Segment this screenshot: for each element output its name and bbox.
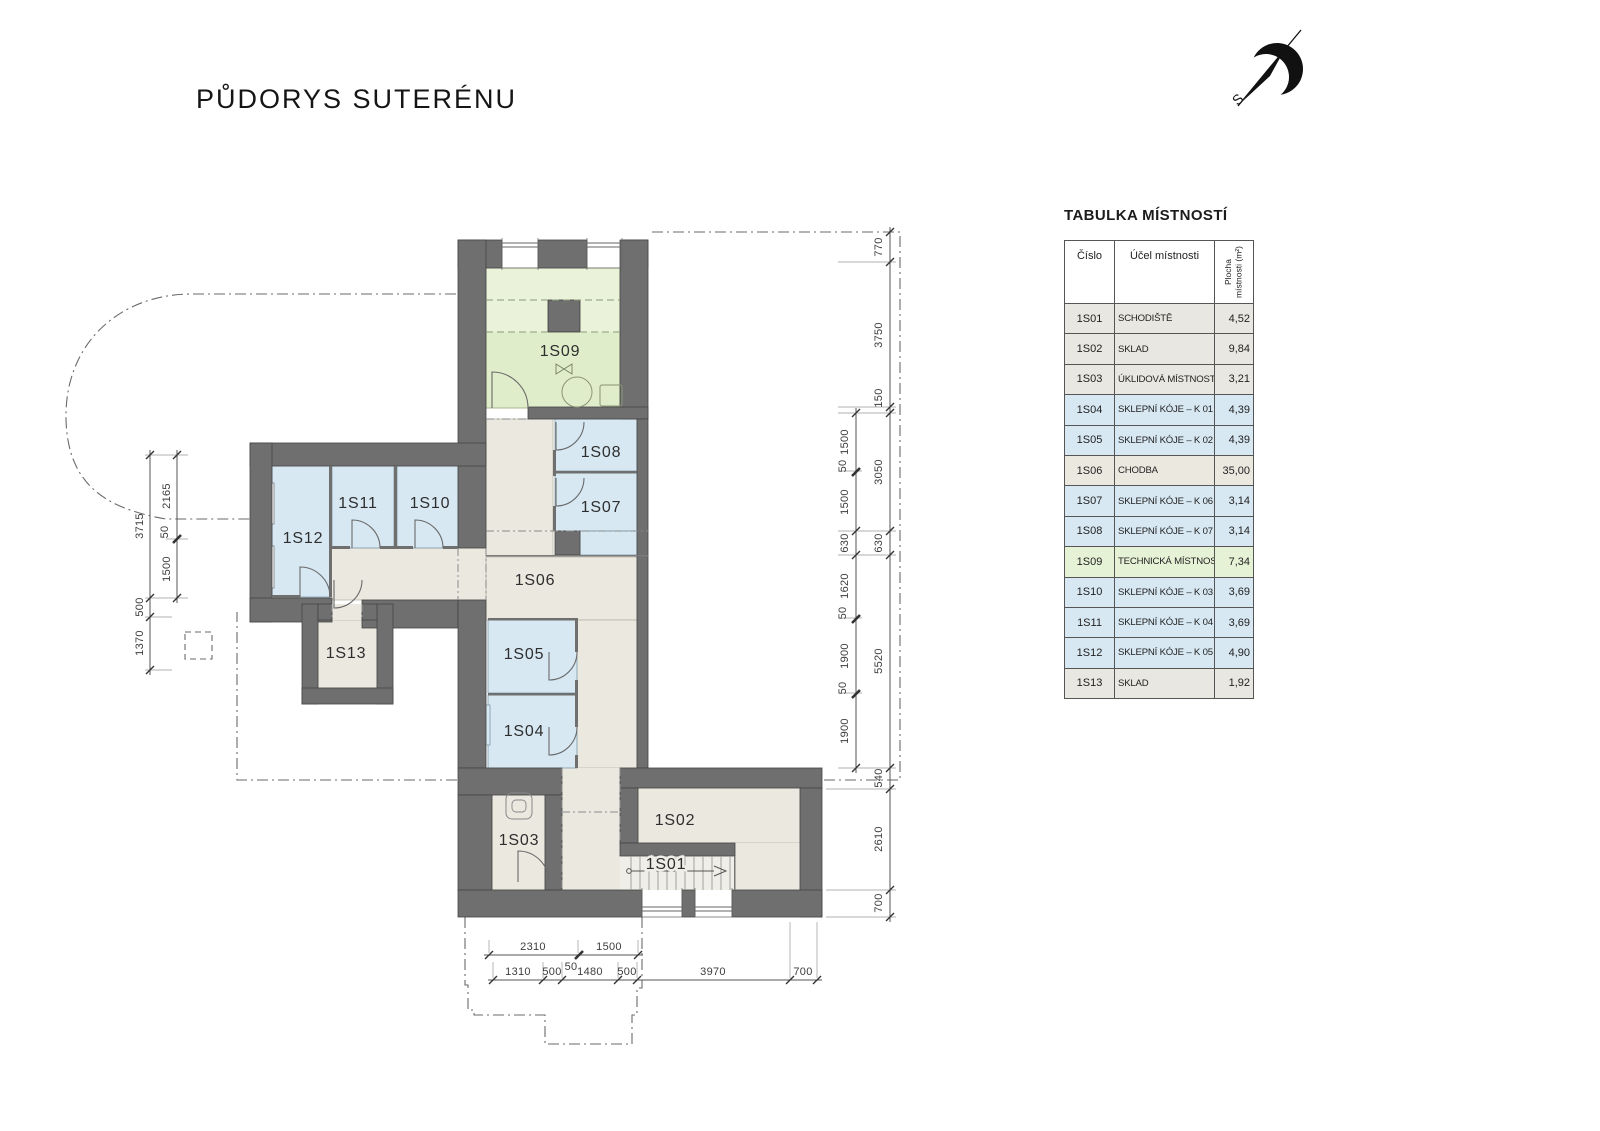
dim-label: 500 bbox=[542, 966, 561, 978]
room-1s06-area bbox=[330, 548, 486, 600]
dim-label: 540 bbox=[873, 768, 885, 787]
dim-label: 3970 bbox=[700, 966, 726, 978]
dim-label: 5520 bbox=[873, 648, 885, 674]
room-label-1s12: 1S12 bbox=[283, 530, 324, 547]
dim-label: 150 bbox=[873, 388, 885, 407]
lightwell bbox=[393, 628, 458, 700]
dim-label: 500 bbox=[134, 597, 146, 616]
room-label-1s07: 1S07 bbox=[581, 499, 622, 516]
dim-label: 700 bbox=[793, 966, 812, 978]
dim-label: 500 bbox=[617, 966, 636, 978]
room-label-1s04: 1S04 bbox=[504, 723, 545, 740]
dim-label: 50 bbox=[159, 526, 171, 539]
room-label-1s13: 1S13 bbox=[326, 645, 367, 662]
north-arrow: S bbox=[1229, 30, 1303, 108]
column bbox=[548, 300, 580, 332]
room-label-1s08: 1S08 bbox=[581, 444, 622, 461]
dim-label: 1500 bbox=[161, 556, 173, 582]
dim-label: 50 bbox=[837, 682, 849, 695]
dim-label: 1500 bbox=[596, 941, 622, 953]
room-1s02-area bbox=[735, 843, 800, 890]
ghost-column bbox=[185, 632, 212, 659]
room-1s06-area bbox=[486, 557, 637, 620]
dim-label: 770 bbox=[873, 237, 885, 256]
room-label-1s05: 1S05 bbox=[504, 646, 545, 663]
dim-label: 1370 bbox=[134, 630, 146, 656]
dim-label: 2165 bbox=[161, 483, 173, 509]
room-label-1s10: 1S10 bbox=[410, 495, 451, 512]
dimensions-bottom: 2310 50 1500 1310 500 1480 500 3970 700 bbox=[484, 922, 822, 984]
room-label-1s01: 1S01 bbox=[646, 856, 687, 873]
dimensions-right: 770 3750 150 3050 630 5520 540 2610 700 … bbox=[826, 227, 896, 922]
room-label-1s06: 1S06 bbox=[515, 572, 556, 589]
room-label-1s09: 1S09 bbox=[540, 343, 581, 360]
dim-label: 630 bbox=[839, 533, 851, 552]
corridor-segment bbox=[562, 768, 620, 890]
dim-label: 3715 bbox=[134, 513, 146, 539]
dim-label: 50 bbox=[565, 961, 578, 973]
room-label-1s11: 1S11 bbox=[338, 495, 377, 512]
dim-label: 700 bbox=[873, 893, 885, 912]
floor-plan-svg: 1S09 1S08 1S07 1S06 1S12 1S11 1S10 1S13 … bbox=[0, 0, 1600, 1131]
drawing-sheet: PŮDORYS SUTERÉNU TABULKA MÍSTNOSTÍ Číslo… bbox=[0, 0, 1600, 1131]
room-label-1s02: 1S02 bbox=[655, 812, 696, 829]
dim-label: 2610 bbox=[873, 826, 885, 852]
dim-label: 1480 bbox=[577, 966, 603, 978]
room-1s06-area bbox=[575, 620, 637, 768]
dimensions-left: 3715 500 1370 2165 50 1500 bbox=[134, 450, 188, 675]
dim-label: 1900 bbox=[839, 643, 851, 669]
room-1s06-area bbox=[486, 419, 553, 560]
dim-label: 1310 bbox=[505, 966, 531, 978]
window-niche bbox=[580, 531, 637, 555]
dim-label: 1620 bbox=[839, 573, 851, 599]
dim-label: 1900 bbox=[839, 718, 851, 744]
dim-label: 50 bbox=[837, 460, 849, 473]
dim-label: 1500 bbox=[839, 489, 851, 515]
dim-label: 3050 bbox=[873, 459, 885, 485]
dim-label: 50 bbox=[837, 607, 849, 620]
north-label: S bbox=[1229, 90, 1247, 108]
room-1s13-door-gap bbox=[332, 604, 362, 620]
dim-label: 1500 bbox=[839, 429, 851, 455]
dim-label: 630 bbox=[873, 533, 885, 552]
room-label-1s03: 1S03 bbox=[499, 832, 540, 849]
dim-label: 2310 bbox=[520, 941, 546, 953]
dim-label: 3750 bbox=[873, 322, 885, 348]
